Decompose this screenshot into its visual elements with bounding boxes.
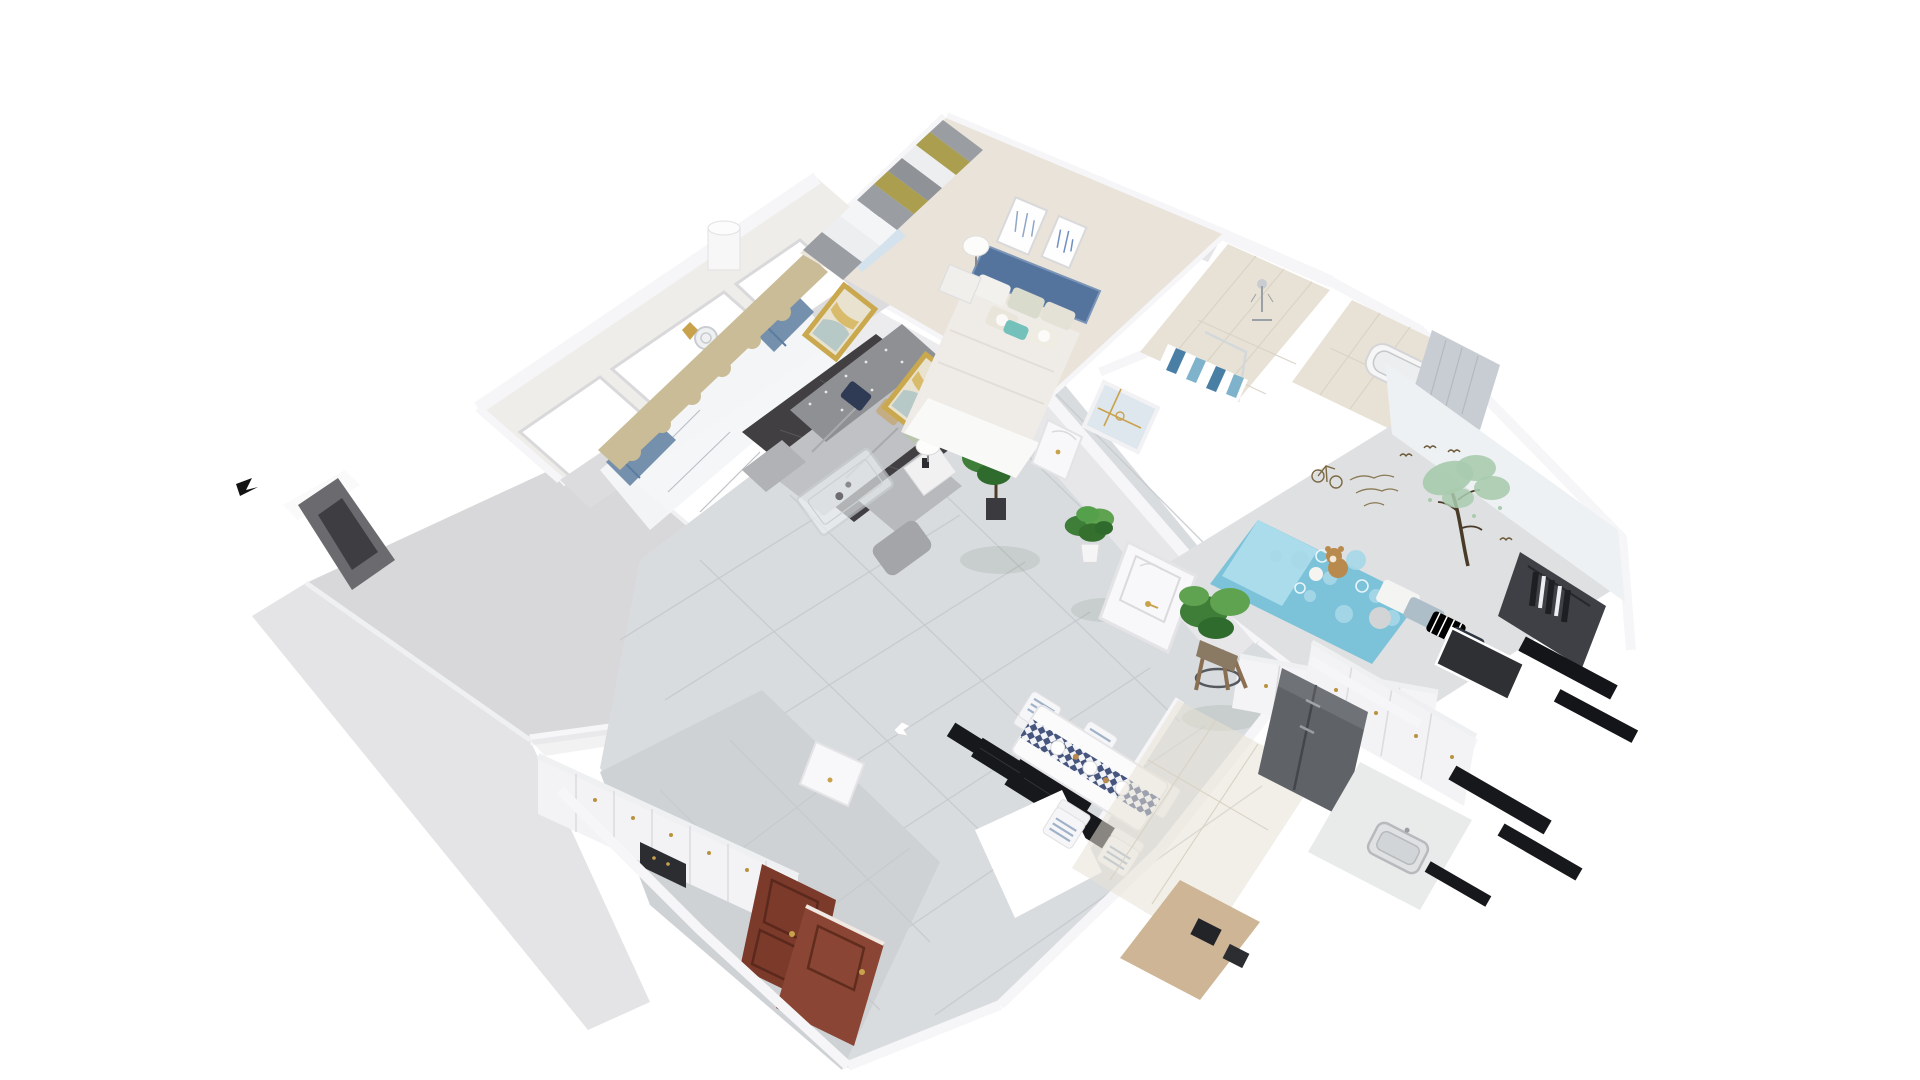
apartment-dollhouse-render [0, 0, 1920, 1080]
render-canvas [0, 0, 1920, 1080]
kids-pillow-round [1369, 607, 1391, 629]
plush-bunny [1309, 567, 1323, 581]
bedside-lamp [963, 236, 989, 256]
plant-reflection [960, 546, 1040, 574]
water-heater-column [708, 221, 740, 270]
